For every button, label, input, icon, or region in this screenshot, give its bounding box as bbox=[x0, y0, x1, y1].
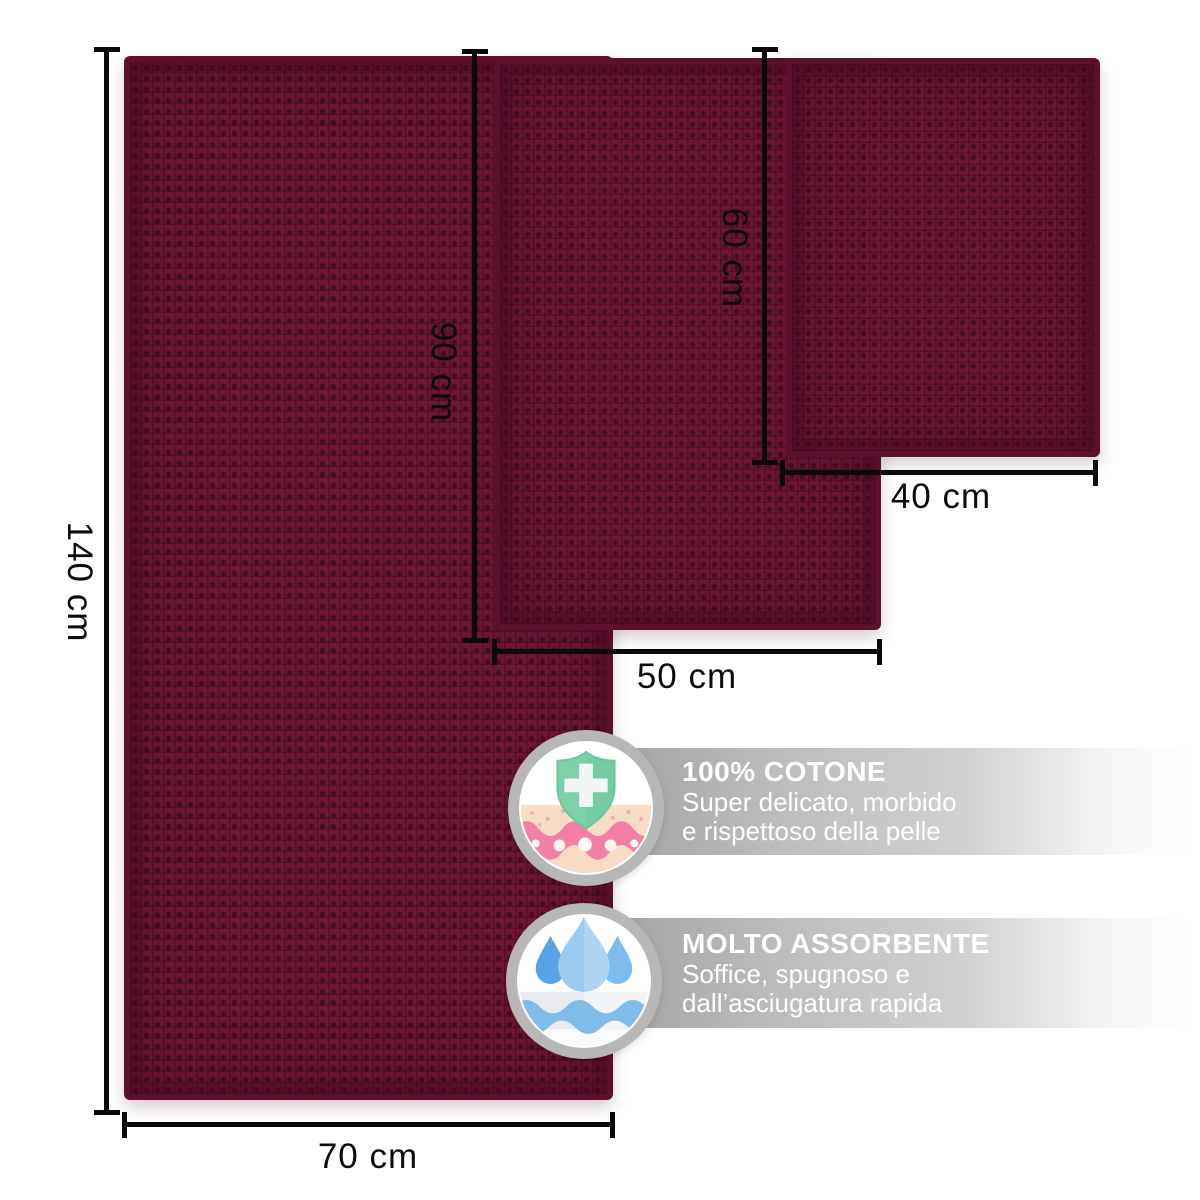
dim-cap bbox=[492, 639, 497, 665]
dim-line-70cm bbox=[122, 1122, 615, 1127]
dim-cap bbox=[1093, 460, 1098, 486]
dim-line-40cm bbox=[780, 470, 1098, 475]
shield-skin-icon bbox=[520, 742, 652, 874]
feature-line: e rispettoso della pelle bbox=[682, 817, 1192, 846]
dim-cap bbox=[877, 639, 882, 665]
dim-cap bbox=[780, 460, 785, 486]
feature-badge-absorbent bbox=[506, 903, 662, 1059]
dim-label-50cm: 50 cm bbox=[637, 657, 737, 697]
dim-line-60cm bbox=[762, 47, 767, 465]
feature-line: dall’asciugatura rapida bbox=[682, 989, 1192, 1018]
feature-banner-cotton: 100% COTONE Super delicato, morbido e ri… bbox=[600, 748, 1192, 855]
dim-cap bbox=[752, 460, 778, 465]
dim-cap bbox=[94, 47, 120, 52]
feature-line: Soffice, spugnoso e bbox=[682, 960, 1192, 989]
dim-label-140cm: 140 cm bbox=[59, 522, 99, 643]
dim-label-90cm: 90 cm bbox=[423, 322, 463, 422]
product-dimension-diagram: 140 cm 90 cm 60 cm 70 cm 50 cm 40 cm 100… bbox=[0, 0, 1200, 1200]
feature-title: 100% COTONE bbox=[682, 757, 1192, 786]
dim-cap bbox=[462, 49, 488, 54]
feature-badge-cotton bbox=[508, 730, 664, 886]
water-drops-icon bbox=[518, 915, 650, 1047]
dim-cap bbox=[122, 1112, 127, 1138]
small-towel-60x40 bbox=[786, 58, 1100, 457]
dim-line-50cm bbox=[492, 649, 882, 654]
feature-line: Super delicato, morbido bbox=[682, 788, 1192, 817]
dim-label-40cm: 40 cm bbox=[891, 477, 991, 517]
dim-label-60cm: 60 cm bbox=[714, 208, 754, 308]
dim-cap bbox=[610, 1112, 615, 1138]
dim-line-90cm bbox=[472, 49, 477, 643]
feature-title: MOLTO ASSORBENTE bbox=[682, 929, 1192, 958]
dim-cap bbox=[752, 47, 778, 52]
feature-banner-absorbent: MOLTO ASSORBENTE Soffice, spugnoso e dal… bbox=[600, 918, 1192, 1028]
dim-cap bbox=[94, 1110, 120, 1115]
dim-line-140cm bbox=[104, 47, 109, 1115]
dim-label-70cm: 70 cm bbox=[318, 1137, 418, 1177]
dim-cap bbox=[462, 638, 488, 643]
